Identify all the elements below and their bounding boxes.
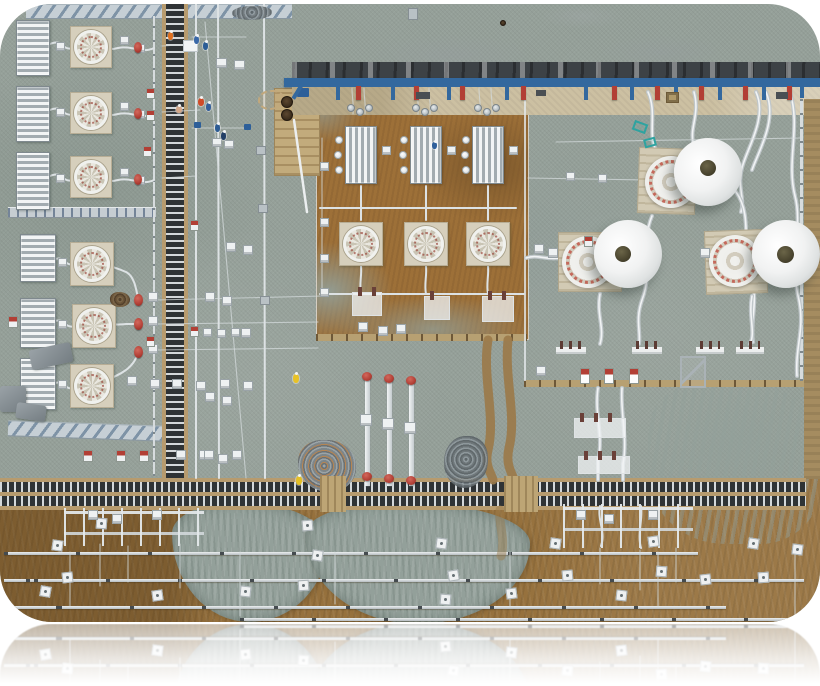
junction-box <box>152 510 162 520</box>
beam-arm <box>630 84 634 100</box>
footing <box>239 585 251 597</box>
junction-box <box>404 422 416 434</box>
clamp-red <box>362 372 372 381</box>
insulator-pad <box>70 26 112 68</box>
worker-hivis <box>293 374 299 383</box>
junction-box <box>241 328 251 338</box>
junction-box <box>58 258 67 267</box>
insulator-pad <box>70 364 114 408</box>
junction-box <box>648 510 658 520</box>
worker-blue <box>215 124 220 132</box>
footing <box>151 589 163 601</box>
bushing <box>412 104 420 112</box>
cable-bell <box>134 346 143 358</box>
footing <box>562 570 574 582</box>
insulator-stand <box>736 341 764 355</box>
marker-box <box>8 316 18 328</box>
bushing <box>347 104 355 112</box>
junction-box <box>203 328 212 337</box>
red-column <box>521 86 526 100</box>
marker-box <box>139 450 149 462</box>
bushing <box>421 108 429 116</box>
walkway-vent <box>776 92 788 99</box>
junction-box <box>243 381 253 391</box>
junction-box <box>148 316 158 326</box>
radiator-unit <box>16 20 50 76</box>
marker-box <box>146 110 155 121</box>
switch-rack <box>387 380 392 486</box>
footing <box>549 537 561 549</box>
junction-box <box>58 320 67 329</box>
junction-box <box>447 146 456 155</box>
junction-box <box>509 146 518 155</box>
junction-box <box>56 108 65 117</box>
page: { "scene": { "description": "Aerial top-… <box>0 0 820 686</box>
junction-box <box>566 172 575 181</box>
junction-box <box>112 514 122 524</box>
junction-box <box>222 396 232 406</box>
junction-box <box>176 450 186 460</box>
junction-box <box>172 379 182 389</box>
junction-box <box>56 174 65 183</box>
junction-box <box>382 418 394 430</box>
beam-arm <box>762 84 766 100</box>
beam-arm <box>336 84 340 100</box>
junction-box <box>320 218 329 227</box>
junction-box <box>148 292 158 302</box>
junction-box <box>396 324 406 334</box>
walkway-vent <box>416 92 430 99</box>
switch-cap <box>580 368 590 384</box>
arrester <box>400 166 408 174</box>
junction-box <box>231 328 240 337</box>
footing <box>51 539 63 551</box>
junction-box <box>358 322 368 332</box>
junction-box <box>226 242 236 252</box>
junction-box <box>576 510 586 520</box>
reactor-bore <box>700 160 716 176</box>
footing <box>791 543 803 555</box>
junction-box <box>234 60 245 70</box>
worker-navy <box>221 132 226 140</box>
worker-blue <box>203 42 208 50</box>
clamp <box>194 122 201 128</box>
junction-box <box>205 392 215 402</box>
wire-coil <box>110 292 130 307</box>
radiator-unit <box>20 234 56 282</box>
marker-box <box>146 88 155 99</box>
wire-debris <box>232 6 272 20</box>
reactor-pad <box>404 222 448 266</box>
switch-rack <box>365 378 370 486</box>
arrester <box>334 151 342 159</box>
scaffold-cube <box>680 356 706 388</box>
reactor-bore <box>777 246 794 263</box>
marker-box <box>146 336 155 347</box>
marker-box <box>190 326 199 337</box>
footing <box>39 585 52 598</box>
red-column <box>612 86 617 100</box>
disconnect-unit <box>574 418 626 438</box>
gray-box <box>260 296 270 305</box>
disconnect-unit <box>482 296 514 322</box>
clamp-red <box>406 476 416 485</box>
footing <box>656 566 668 578</box>
red-column <box>460 86 465 100</box>
junction-box <box>320 288 329 297</box>
clamp-red <box>406 376 416 385</box>
marker-box <box>190 220 199 231</box>
worker-hivis <box>296 476 302 485</box>
bushing <box>492 104 500 112</box>
cable-spool <box>281 109 293 121</box>
junction-box <box>120 168 129 177</box>
junction-box <box>604 514 614 524</box>
cable-bell <box>134 42 142 53</box>
arrester <box>335 166 343 174</box>
footing <box>440 594 452 606</box>
gray-box <box>256 146 266 155</box>
arrester <box>462 166 470 174</box>
marker-box <box>83 450 93 462</box>
junction-box <box>536 366 546 376</box>
bushing <box>483 108 491 116</box>
roof-vent <box>408 8 418 20</box>
junction-box <box>204 450 214 460</box>
junction-box <box>320 162 329 171</box>
photo-reflection <box>0 624 820 686</box>
trench-crossing <box>320 476 346 512</box>
clamp-red <box>362 472 372 481</box>
beam-arm <box>718 84 722 100</box>
worker-orange <box>168 32 173 40</box>
beam-arm <box>391 84 395 100</box>
switch-cap <box>604 368 614 384</box>
clamp-red <box>384 374 394 383</box>
junction-box <box>222 296 232 306</box>
insulator-stand <box>696 341 724 355</box>
footing <box>758 572 770 584</box>
footing <box>647 535 659 547</box>
beam-arm <box>800 84 804 98</box>
radiator-unit <box>16 86 50 142</box>
switch-rack <box>409 382 414 486</box>
cable-bell <box>134 294 143 306</box>
bushing <box>365 104 373 112</box>
insulator-stand <box>632 341 662 355</box>
reflection-fade <box>0 624 820 686</box>
arrester <box>461 151 469 159</box>
walkway-vent <box>536 90 546 96</box>
junction-box <box>150 379 160 389</box>
worker-red <box>198 98 204 106</box>
switch-cap <box>629 368 639 384</box>
footing <box>699 573 711 585</box>
red-column <box>699 86 704 100</box>
worker-blue <box>206 103 211 111</box>
junction-box <box>224 140 234 149</box>
junction-box <box>218 454 228 464</box>
insulator-pad <box>70 242 114 286</box>
junction-box <box>127 376 137 386</box>
substation-photo <box>0 4 820 622</box>
marked-box <box>666 92 679 103</box>
junction-box <box>378 326 388 336</box>
junction-box <box>534 244 544 254</box>
junction-box <box>382 146 391 155</box>
bushing <box>356 108 364 116</box>
bushing <box>430 104 438 112</box>
insulator-stand <box>556 341 586 355</box>
footing <box>505 587 517 599</box>
junction-box <box>120 36 129 45</box>
footing <box>447 569 460 582</box>
junction-box <box>217 329 226 338</box>
cable-bell <box>134 108 142 119</box>
red-column <box>655 86 660 100</box>
transformer-unit <box>472 126 504 184</box>
marker-box <box>584 236 593 247</box>
beam-arm <box>447 84 451 100</box>
tarp-sheet <box>15 402 47 422</box>
junction-box <box>548 248 558 258</box>
radiator-unit <box>16 152 50 210</box>
insulator-pad <box>70 92 112 134</box>
footing <box>747 537 760 550</box>
gray-box <box>258 204 268 213</box>
footing <box>311 549 324 562</box>
footing <box>298 580 310 592</box>
reactor-bore <box>615 246 631 262</box>
footing <box>615 589 627 601</box>
beam-arm <box>505 84 509 100</box>
transformer-unit <box>410 126 442 184</box>
junction-box <box>598 174 607 183</box>
junction-box <box>700 248 710 258</box>
junction-box <box>58 380 67 389</box>
red-column <box>743 86 748 100</box>
arrester <box>400 136 408 144</box>
junction-box <box>120 102 129 111</box>
junction-box <box>205 292 215 302</box>
insulator-pad <box>70 156 112 198</box>
marker-box <box>116 450 126 462</box>
marker-box <box>143 146 152 157</box>
transformer-unit <box>345 126 377 184</box>
junction-box <box>56 42 65 51</box>
worker-blue <box>194 36 199 44</box>
clamp <box>244 124 251 130</box>
disconnect-unit <box>578 456 630 474</box>
cable-bell <box>134 174 142 185</box>
trench-crossing <box>504 476 538 512</box>
arrester <box>462 136 470 144</box>
disconnect-unit <box>352 292 382 316</box>
footing <box>435 537 447 549</box>
junction-box <box>196 381 206 391</box>
reactor-pad <box>339 222 383 266</box>
clamp-red <box>384 474 394 483</box>
junction-box <box>360 414 372 426</box>
arrester <box>399 151 407 159</box>
bushing <box>474 104 482 112</box>
junction-box <box>88 510 98 520</box>
worker-blue <box>432 142 437 149</box>
cable-bell <box>134 318 143 330</box>
roof-drain <box>500 20 506 26</box>
footing <box>302 520 314 532</box>
beam-arm <box>584 84 588 100</box>
scaffold-part <box>632 120 649 134</box>
red-column <box>356 86 361 100</box>
junction-box <box>232 450 242 460</box>
junction-box <box>320 254 329 263</box>
wire-pile <box>444 436 488 488</box>
junction-box <box>243 245 253 255</box>
junction-box <box>216 58 227 68</box>
disconnect-unit <box>424 296 450 320</box>
arrester <box>335 136 343 144</box>
junction-box <box>220 379 230 389</box>
object-layer <box>0 4 820 622</box>
insulator-pad <box>72 304 116 348</box>
junction-box <box>212 138 222 147</box>
worker <box>176 106 182 113</box>
radiator-unit <box>20 298 56 348</box>
reactor-pad <box>466 222 510 266</box>
footing <box>61 571 73 583</box>
